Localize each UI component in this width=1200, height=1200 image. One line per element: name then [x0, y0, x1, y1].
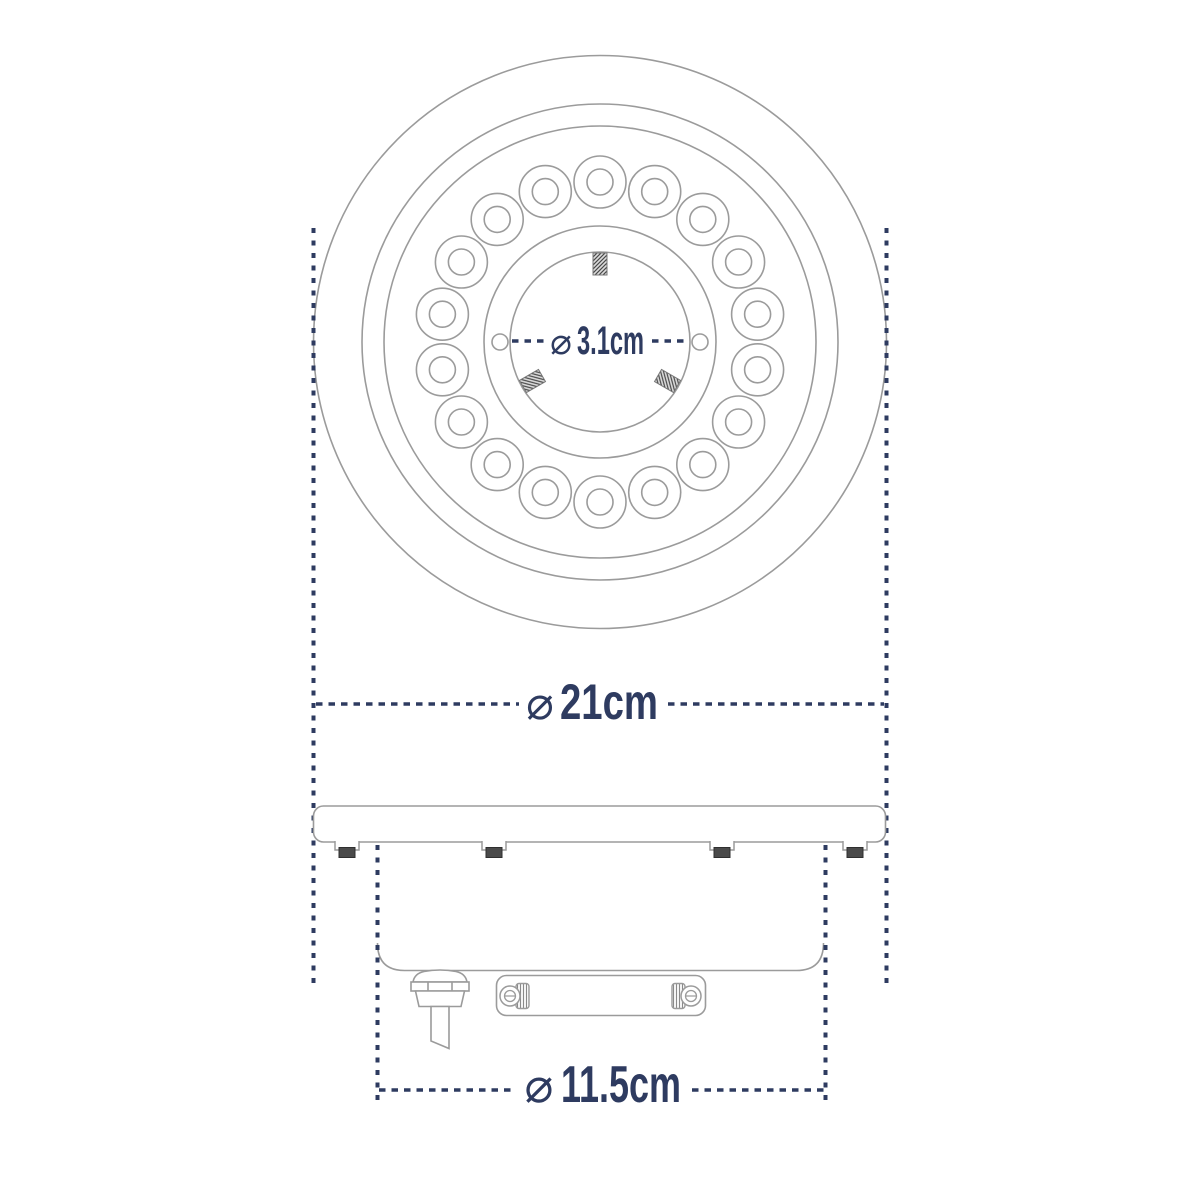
top-view: ⌀ 3.1cm [314, 56, 887, 629]
led-hole-inner [726, 249, 752, 275]
led-hole-outer [435, 396, 487, 448]
led-hole-inner [690, 452, 716, 478]
hub-side-hole [492, 334, 508, 350]
led-hole-outer [471, 193, 523, 245]
led-hole-outer [629, 166, 681, 218]
led-hole-inner [587, 489, 613, 515]
led-hole-inner [745, 357, 771, 383]
overall-diameter-symbol: ⌀ [526, 676, 554, 730]
led-hole-outer [732, 288, 784, 340]
led-hole-inner [726, 409, 752, 435]
led-hole-inner [484, 206, 510, 232]
hub-side-hole [692, 334, 708, 350]
led-hole-outer [732, 344, 784, 396]
led-light-dimension-drawing: ⌀ 3.1cm ⌀ 21cm [0, 0, 1200, 1200]
led-hole-outer [677, 193, 729, 245]
led-hole-outer [416, 288, 468, 340]
led-hole-outer [629, 466, 681, 518]
led-hole-inner [429, 357, 455, 383]
led-hole-outer [416, 344, 468, 396]
flange-screws [335, 841, 867, 858]
led-hole-outer [713, 236, 765, 288]
led-hole-inner [484, 452, 510, 478]
led-hole-outer [471, 439, 523, 491]
led-hole-inner [745, 301, 771, 327]
flange-screw [335, 841, 359, 858]
flange-screw-thread [486, 848, 502, 858]
gland-collar [416, 991, 465, 1007]
hub-dimension: ⌀ 3.1cm [512, 319, 689, 363]
body-diameter-label: 11.5cm [561, 1056, 681, 1114]
body-profile [378, 943, 824, 971]
flange-screw [843, 841, 867, 858]
hub-diameter-symbol: ⌀ [550, 322, 572, 363]
led-hole-outer [574, 476, 626, 528]
cable-gland [411, 970, 469, 1049]
flange-screw [482, 841, 506, 858]
led-hole-outer [435, 236, 487, 288]
led-hole-inner [448, 409, 474, 435]
hub-stud-thread [593, 253, 607, 275]
overall-diameter-label: 21cm [560, 674, 658, 730]
led-hole-inner [532, 479, 558, 505]
led-hole-inner [642, 479, 668, 505]
hub-diameter-label: 3.1cm [577, 319, 644, 363]
gland-dome [413, 970, 467, 982]
flange-screw-thread [714, 848, 730, 858]
flange-profile [314, 806, 886, 842]
flange-screw-thread [847, 848, 863, 858]
led-hole-outer [519, 166, 571, 218]
led-hole-outer [713, 396, 765, 448]
led-hole-inner [690, 206, 716, 232]
diagram-canvas: ⌀ 3.1cm ⌀ 21cm [0, 0, 1200, 1200]
bracket-screw [500, 984, 529, 1009]
led-hole-inner [532, 179, 558, 205]
flange-screw-thread [339, 848, 355, 858]
led-hole-outer [519, 466, 571, 518]
body-diameter-symbol: ⌀ [525, 1058, 554, 1114]
hub-stud [593, 253, 607, 275]
cable [431, 1007, 449, 1049]
led-hole-outer [574, 156, 626, 208]
led-hole-inner [587, 169, 613, 195]
led-hole-inner [448, 249, 474, 275]
led-hole-outer [677, 439, 729, 491]
gland-hex-nut [411, 982, 469, 991]
bracket-screw [672, 984, 701, 1009]
flange-screw [710, 841, 734, 858]
led-hole-inner [429, 301, 455, 327]
led-hole-inner [642, 179, 668, 205]
side-view: ⌀ 11.5cm [314, 806, 886, 1114]
